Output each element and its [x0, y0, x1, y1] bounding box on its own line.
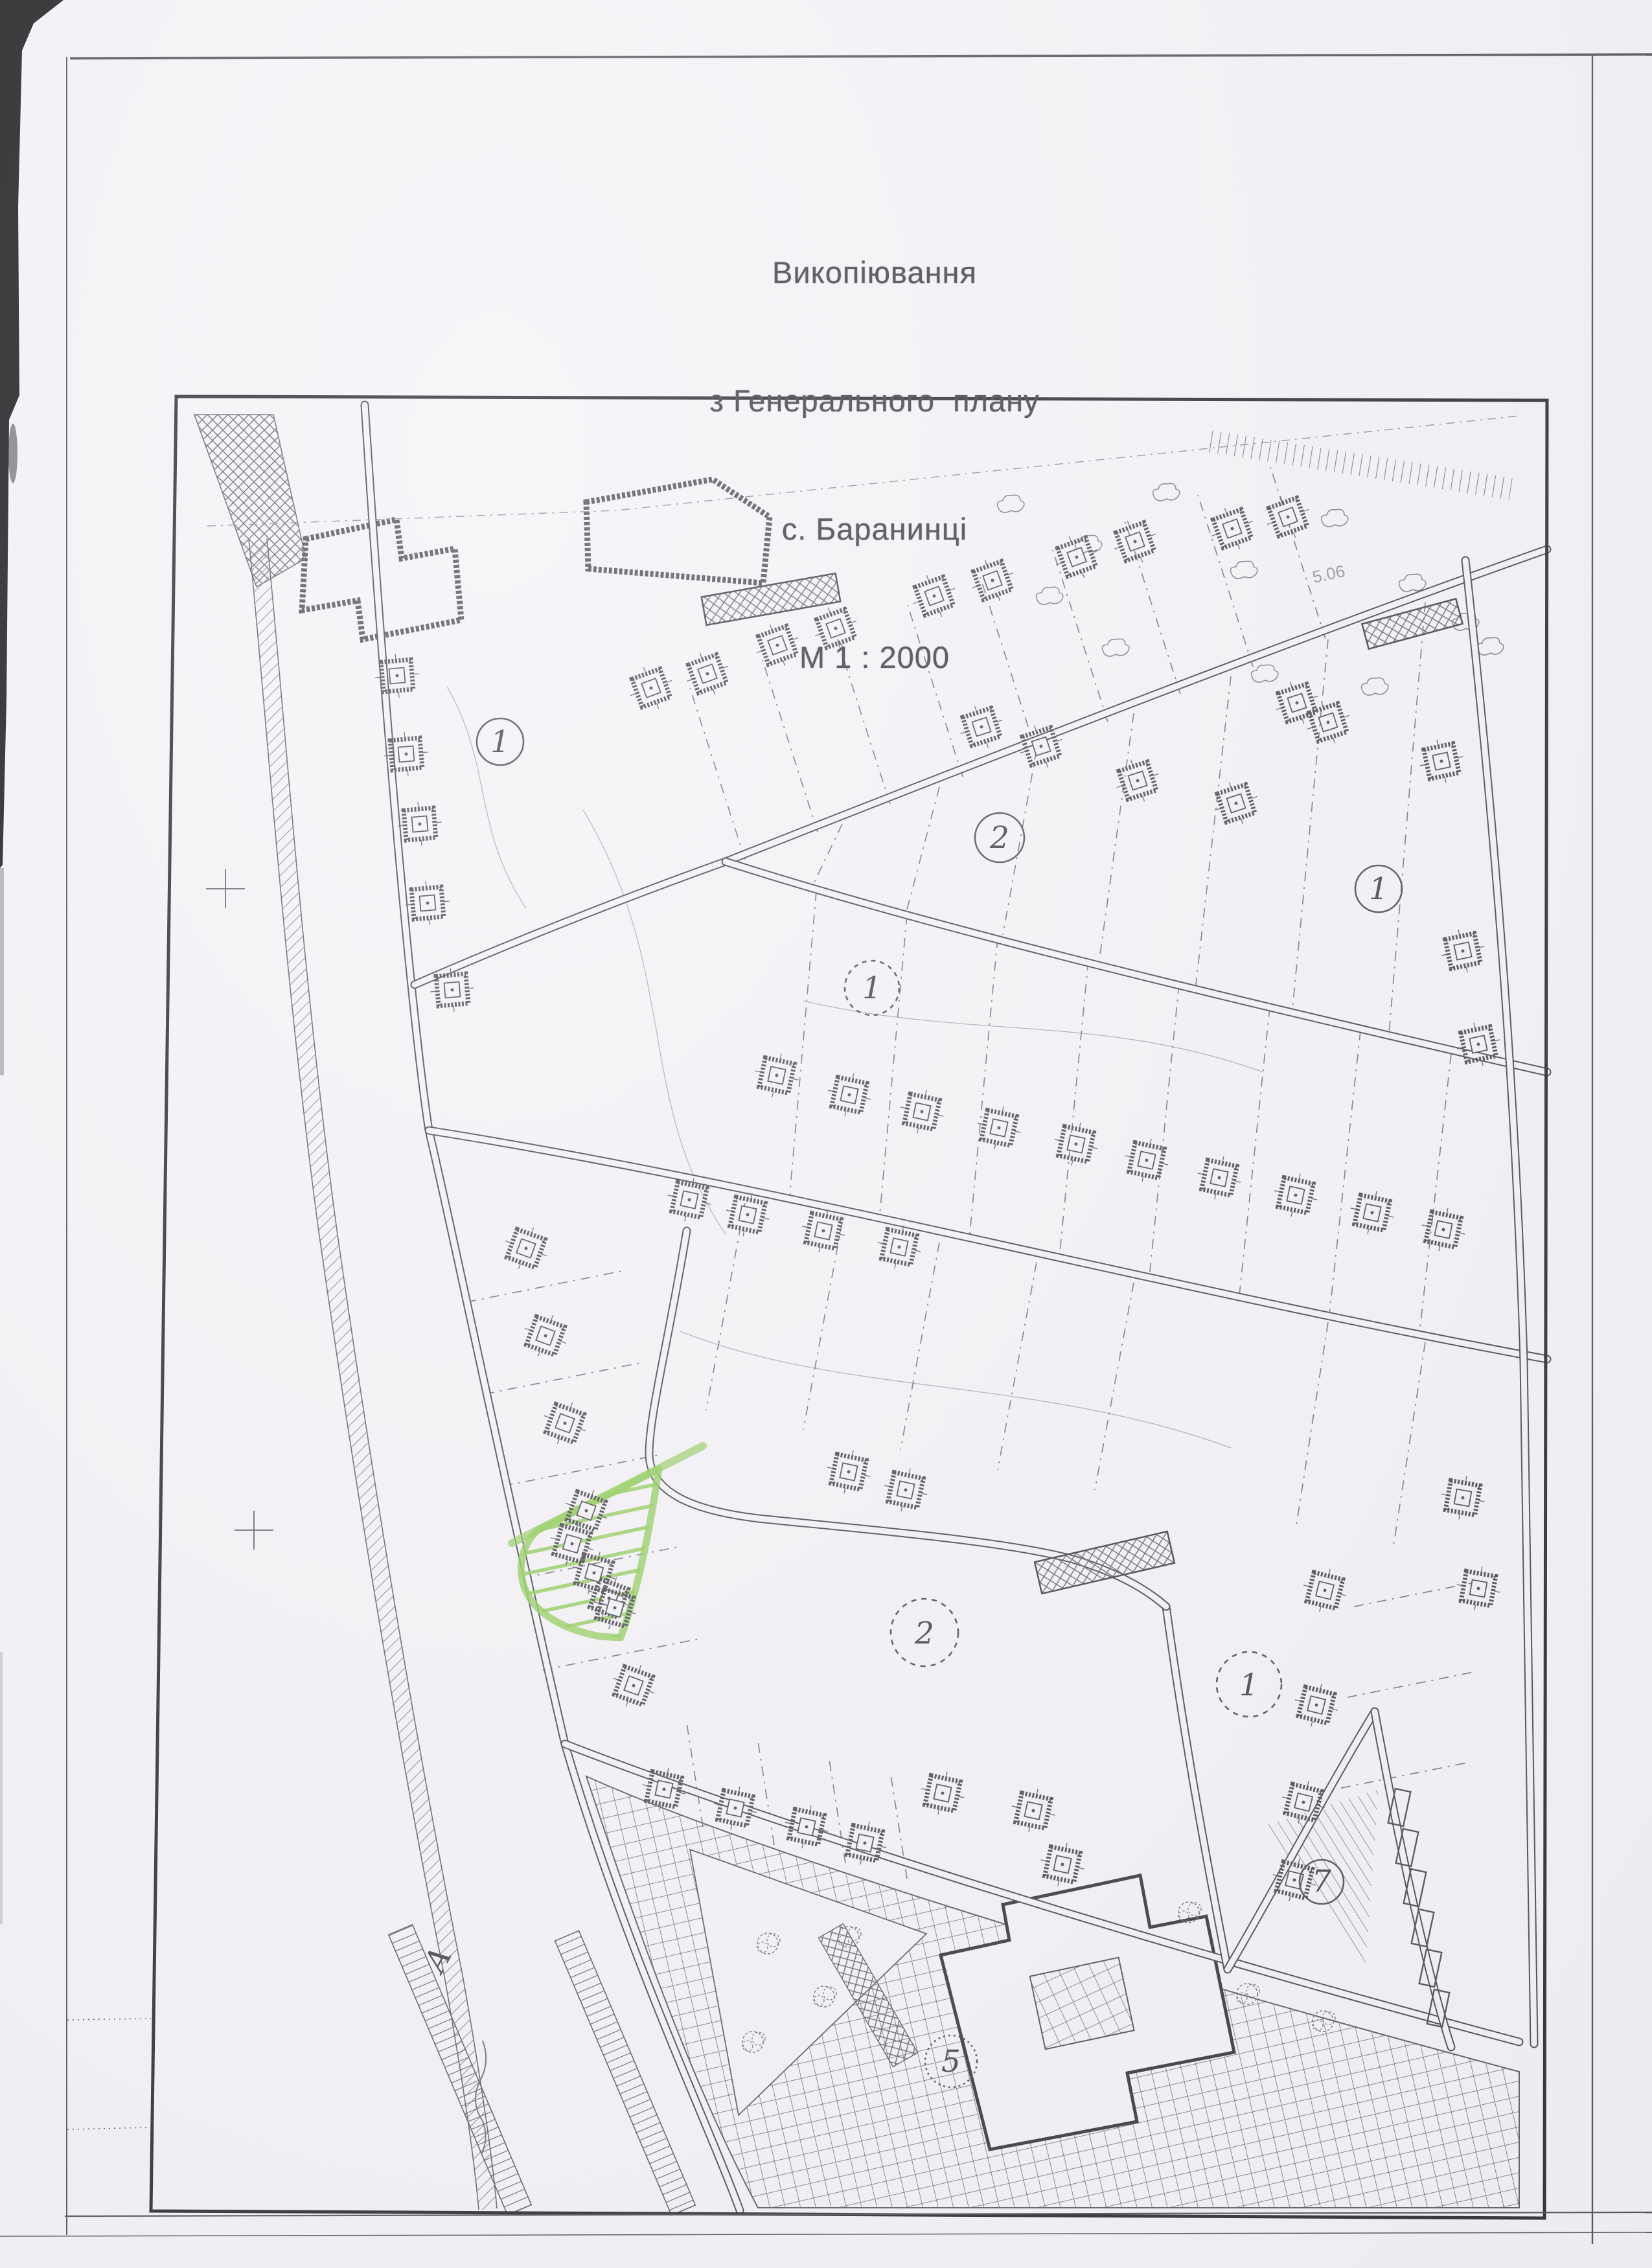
- house: [823, 1446, 875, 1498]
- house: [1346, 1187, 1399, 1239]
- svg-text:1: 1: [862, 970, 882, 1006]
- river-hachure-band: [249, 538, 497, 2210]
- house: [396, 800, 444, 848]
- house: [823, 1069, 876, 1121]
- paved-public-area: [586, 1776, 1519, 2208]
- house: [1437, 925, 1489, 978]
- house: [1050, 1118, 1103, 1171]
- svg-text:2: 2: [989, 820, 1009, 856]
- title-block: Викопіювання з Генерального плану с. Бар…: [421, 166, 1328, 764]
- svg-text:1: 1: [1369, 871, 1388, 907]
- house: [1416, 735, 1468, 788]
- house: [536, 1395, 593, 1451]
- house: [1298, 1564, 1351, 1617]
- house: [1290, 1678, 1343, 1732]
- scanner-edge-artifacts: [0, 0, 63, 1924]
- house: [605, 1657, 661, 1713]
- area-label-south-block: 2: [891, 1599, 958, 1666]
- house: [1037, 1838, 1089, 1891]
- house: [896, 1086, 948, 1138]
- house: [1417, 1204, 1470, 1256]
- house: [498, 1220, 554, 1276]
- svg-text:1: 1: [1239, 1667, 1259, 1703]
- crosshatch-strip: [194, 415, 306, 587]
- scanned-document-page: 5.06: [0, 0, 1652, 2268]
- house: [1438, 1472, 1489, 1524]
- title-line-1: Викопіювання: [421, 251, 1328, 294]
- title-line-4: М 1 : 2000: [421, 636, 1328, 679]
- house: [1208, 775, 1264, 831]
- area-label-middle-block: 1: [845, 961, 899, 1015]
- house: [1193, 1152, 1246, 1204]
- house: [917, 1767, 969, 1820]
- area-label-north-block: 2: [975, 813, 1024, 862]
- survey-cross-marks: [206, 869, 273, 1550]
- svg-text:2: 2: [914, 1616, 934, 1651]
- title-line-2: з Генерального плану: [421, 380, 1328, 422]
- svg-text:5: 5: [941, 2044, 961, 2079]
- house: [880, 1464, 932, 1517]
- svg-text:7: 7: [1312, 1864, 1331, 1899]
- house: [517, 1307, 573, 1364]
- area-label-southeast-block: 1: [1217, 1652, 1281, 1717]
- house: [751, 1049, 803, 1102]
- house: [1270, 1169, 1322, 1222]
- house: [973, 1102, 1026, 1154]
- scrub-icon: [1399, 574, 1426, 591]
- title-line-3: с. Баранинці: [421, 508, 1328, 551]
- house: [1121, 1134, 1173, 1187]
- house: [1007, 1785, 1060, 1837]
- scrub-icon: [1477, 637, 1504, 655]
- house: [404, 879, 452, 927]
- contour-lines: [447, 687, 1263, 1448]
- house: [1453, 1563, 1504, 1614]
- scrub-icon: [1362, 678, 1388, 695]
- area-label-east-block: 1: [1355, 865, 1402, 912]
